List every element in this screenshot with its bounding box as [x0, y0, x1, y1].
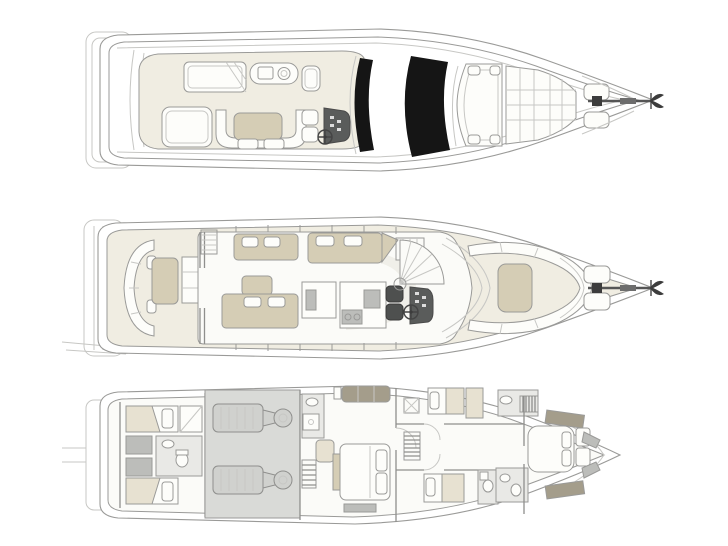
deck-hatch	[584, 293, 610, 310]
guest-cabin-starboard	[424, 470, 498, 504]
bar-sink	[258, 67, 273, 79]
anchor-icon	[650, 281, 664, 295]
chaise-seat	[162, 107, 212, 147]
helm-seat	[386, 304, 403, 320]
lower-helm	[386, 286, 433, 324]
bow-sun-pad	[498, 264, 532, 312]
steering-wheel-icon	[318, 130, 332, 144]
toilet-icon	[483, 480, 493, 492]
toilet-icon	[511, 484, 521, 496]
bow-roller	[620, 285, 636, 291]
fridge	[364, 290, 380, 308]
bow-roller	[620, 98, 636, 104]
bathroom-floor	[496, 468, 528, 502]
sink-icon	[162, 440, 174, 448]
guest-cabin-port	[428, 388, 483, 418]
pillow	[376, 473, 387, 494]
windlass	[592, 283, 602, 293]
cockpit-table	[152, 258, 178, 304]
glass-panel-forward	[405, 56, 450, 157]
helm-seat	[302, 110, 318, 125]
pillow	[562, 450, 571, 466]
sink-icon	[500, 474, 510, 482]
master-sofa	[342, 386, 390, 402]
helm-console	[324, 108, 350, 144]
helm-seat	[386, 286, 403, 302]
toilet-tank	[176, 450, 188, 455]
anchor-icon	[650, 94, 664, 108]
helm-seat	[302, 127, 318, 142]
dishwasher	[306, 290, 316, 310]
yacht-deck-plans-canvas	[0, 0, 728, 546]
deck-hatch	[584, 112, 609, 128]
shower	[303, 414, 319, 430]
sink-icon	[306, 398, 318, 406]
pillow	[162, 409, 173, 428]
pillow	[162, 482, 173, 501]
wet-bar	[250, 63, 298, 84]
foot-bench	[333, 454, 340, 490]
steering-wheel-icon	[404, 305, 418, 319]
sink-icon	[500, 396, 512, 404]
wardrobe	[316, 440, 334, 462]
side-table	[334, 387, 341, 399]
windlass	[592, 96, 602, 106]
forward-bathroom-port	[498, 390, 538, 416]
forward-bathroom-starboard	[496, 468, 528, 502]
main-deck-plan	[62, 217, 664, 359]
deck-hatch	[584, 266, 610, 283]
pillow	[430, 392, 439, 409]
coffee-table	[242, 276, 272, 295]
engine-room	[205, 390, 300, 518]
seat-cushion	[238, 139, 258, 149]
sun-lounger	[184, 62, 246, 92]
guest-closet	[466, 388, 483, 418]
flybridge-deck-plan	[86, 29, 664, 171]
pillow	[426, 478, 435, 496]
vip-nightstand	[576, 448, 590, 466]
cocktail-table	[234, 113, 282, 140]
guest-blanket	[446, 388, 464, 414]
pillow	[562, 432, 571, 448]
guest-blanket	[442, 474, 464, 502]
companion-seat	[302, 66, 320, 91]
lower-deck-plan	[62, 386, 620, 524]
sink-icon	[480, 472, 488, 480]
tv-cabinet	[344, 504, 376, 512]
crew-cabinet	[126, 458, 152, 476]
pillow	[376, 450, 387, 471]
seat-cushion	[264, 139, 284, 149]
shelf-unit	[182, 257, 198, 303]
crew-cabinet	[126, 436, 152, 454]
deck-plans-drawing	[0, 0, 728, 546]
